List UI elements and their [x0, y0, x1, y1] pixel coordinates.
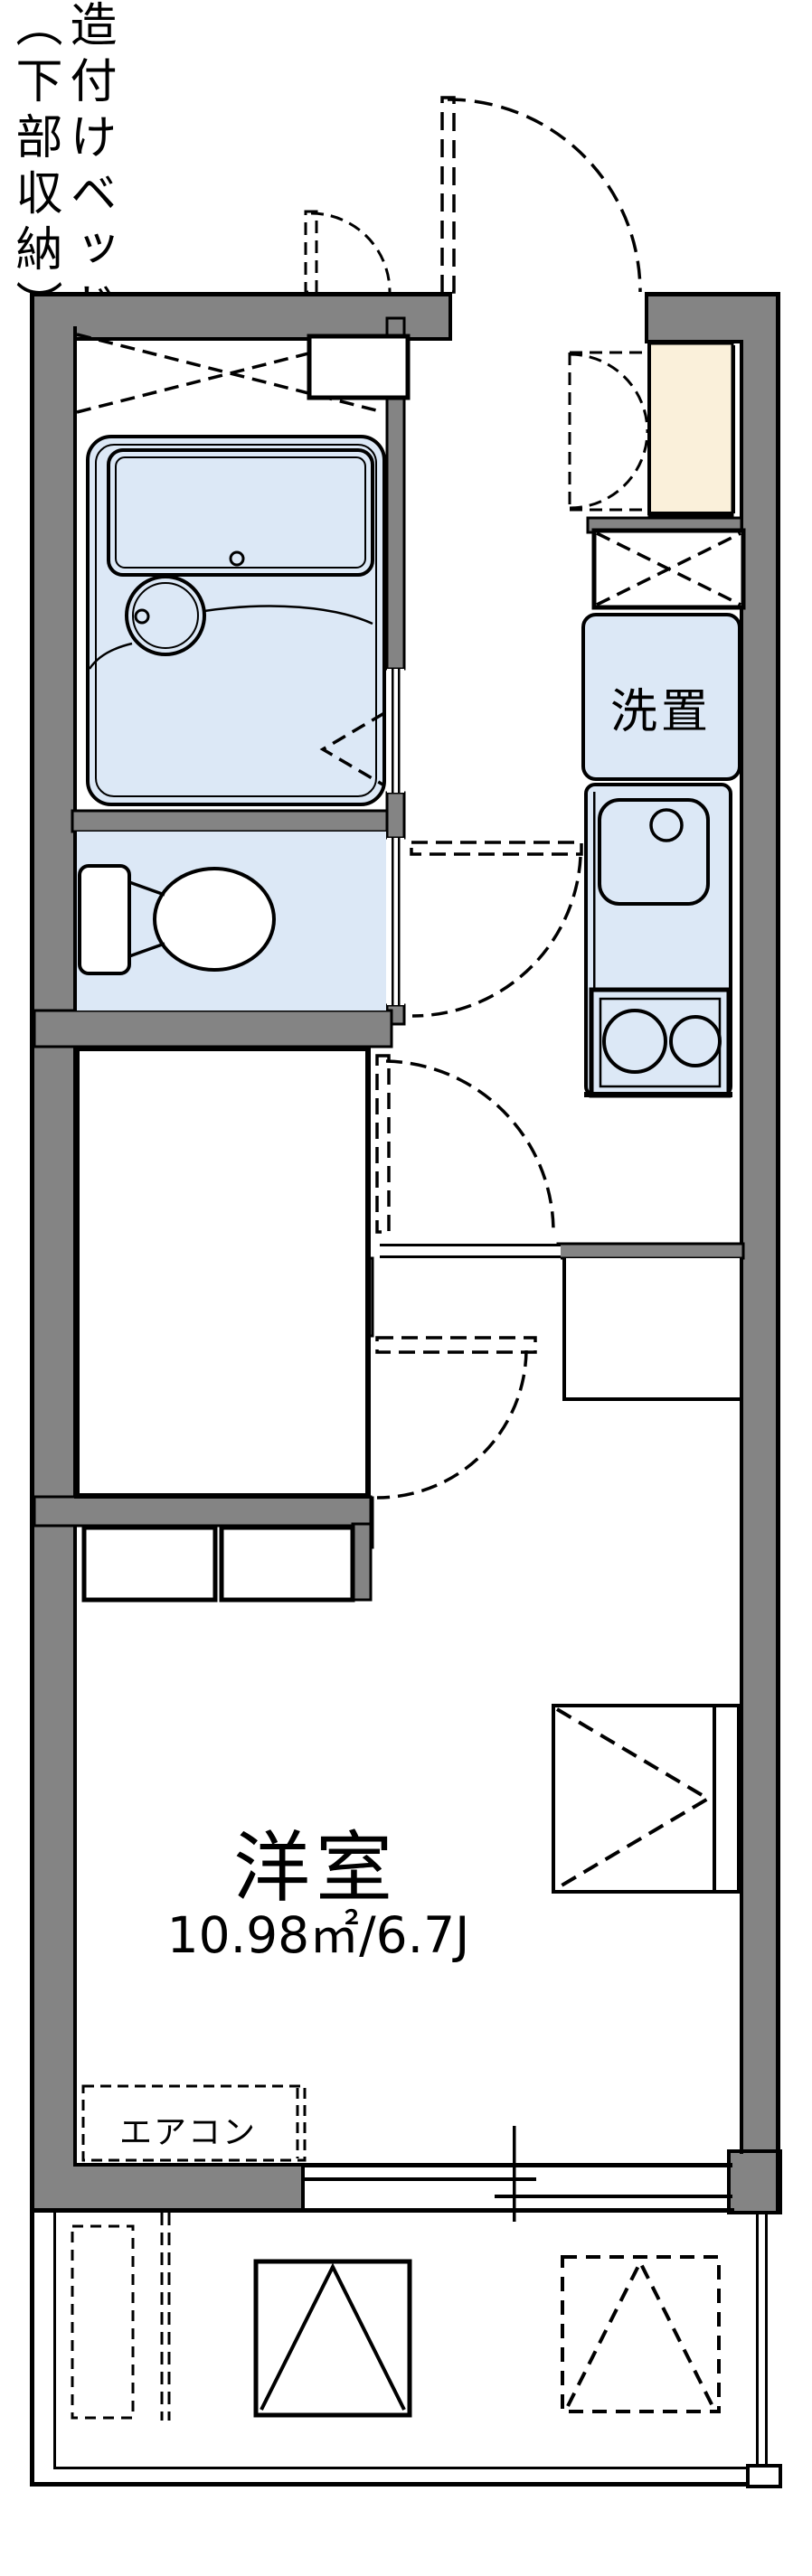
under-bed-storage-left — [84, 1528, 215, 1600]
floorplan-canvas: 洗置 造付けベッド （下部収納） 洋室 10.98㎡/6.7J エアコン — [0, 0, 812, 2576]
balcony-window-icon — [303, 2126, 732, 2222]
room-size-label: 10.98㎡/6.7J — [137, 1894, 499, 1967]
wall-cap-bath-toilet — [387, 793, 404, 838]
balcony-divider-icon — [162, 2213, 169, 2421]
bed-box — [77, 1048, 368, 1496]
toilet-door-icon — [411, 842, 581, 1016]
evacuation-hatch-dashed-icon — [562, 2257, 719, 2411]
wall-bath-bottom — [72, 811, 387, 832]
shoe-cabinet-icon — [570, 353, 647, 510]
wall-bottom — [30, 2163, 303, 2213]
window-meeting-stile — [513, 2126, 516, 2222]
balcony — [53, 2213, 780, 2487]
toilet-tank-icon — [80, 866, 129, 973]
side-window-unit — [553, 1706, 739, 1892]
wall-left — [30, 292, 77, 2213]
balcony-end-cap — [748, 2466, 780, 2487]
wall-toilet-bottom — [34, 1011, 392, 1047]
stove-icon — [591, 990, 729, 1095]
wall-kitchen-living — [558, 1244, 743, 1258]
wall-storage-right — [353, 1524, 371, 1600]
meter-box-door-icon — [306, 212, 390, 292]
under-bed-storage-right — [222, 1528, 353, 1600]
washer-space-label: 洗置 — [571, 673, 751, 741]
wash-basin-icon — [127, 577, 204, 654]
bathroom — [77, 334, 408, 804]
slop-sink-icon — [72, 2226, 133, 2418]
wall-under-bed — [34, 1497, 371, 1526]
entrance-tile — [649, 343, 732, 515]
hall-doors — [377, 1056, 561, 1498]
wall-window-right-cap — [729, 2151, 780, 2213]
toilet-room — [77, 832, 581, 1016]
bathtub-icon — [109, 450, 373, 575]
hall-door-icon — [377, 1056, 553, 1232]
kitchen — [583, 531, 743, 1097]
fridge-space — [562, 1258, 740, 1401]
evacuation-hatch-icon — [256, 2261, 410, 2415]
aircon-label: エアコン — [89, 2106, 288, 2153]
floorplan-drawing — [0, 0, 812, 2576]
wall-right — [740, 292, 780, 2213]
bedroom-door-icon — [377, 1338, 535, 1498]
entrance-door-icon — [442, 98, 640, 292]
toilet-bowl-icon — [155, 869, 274, 970]
